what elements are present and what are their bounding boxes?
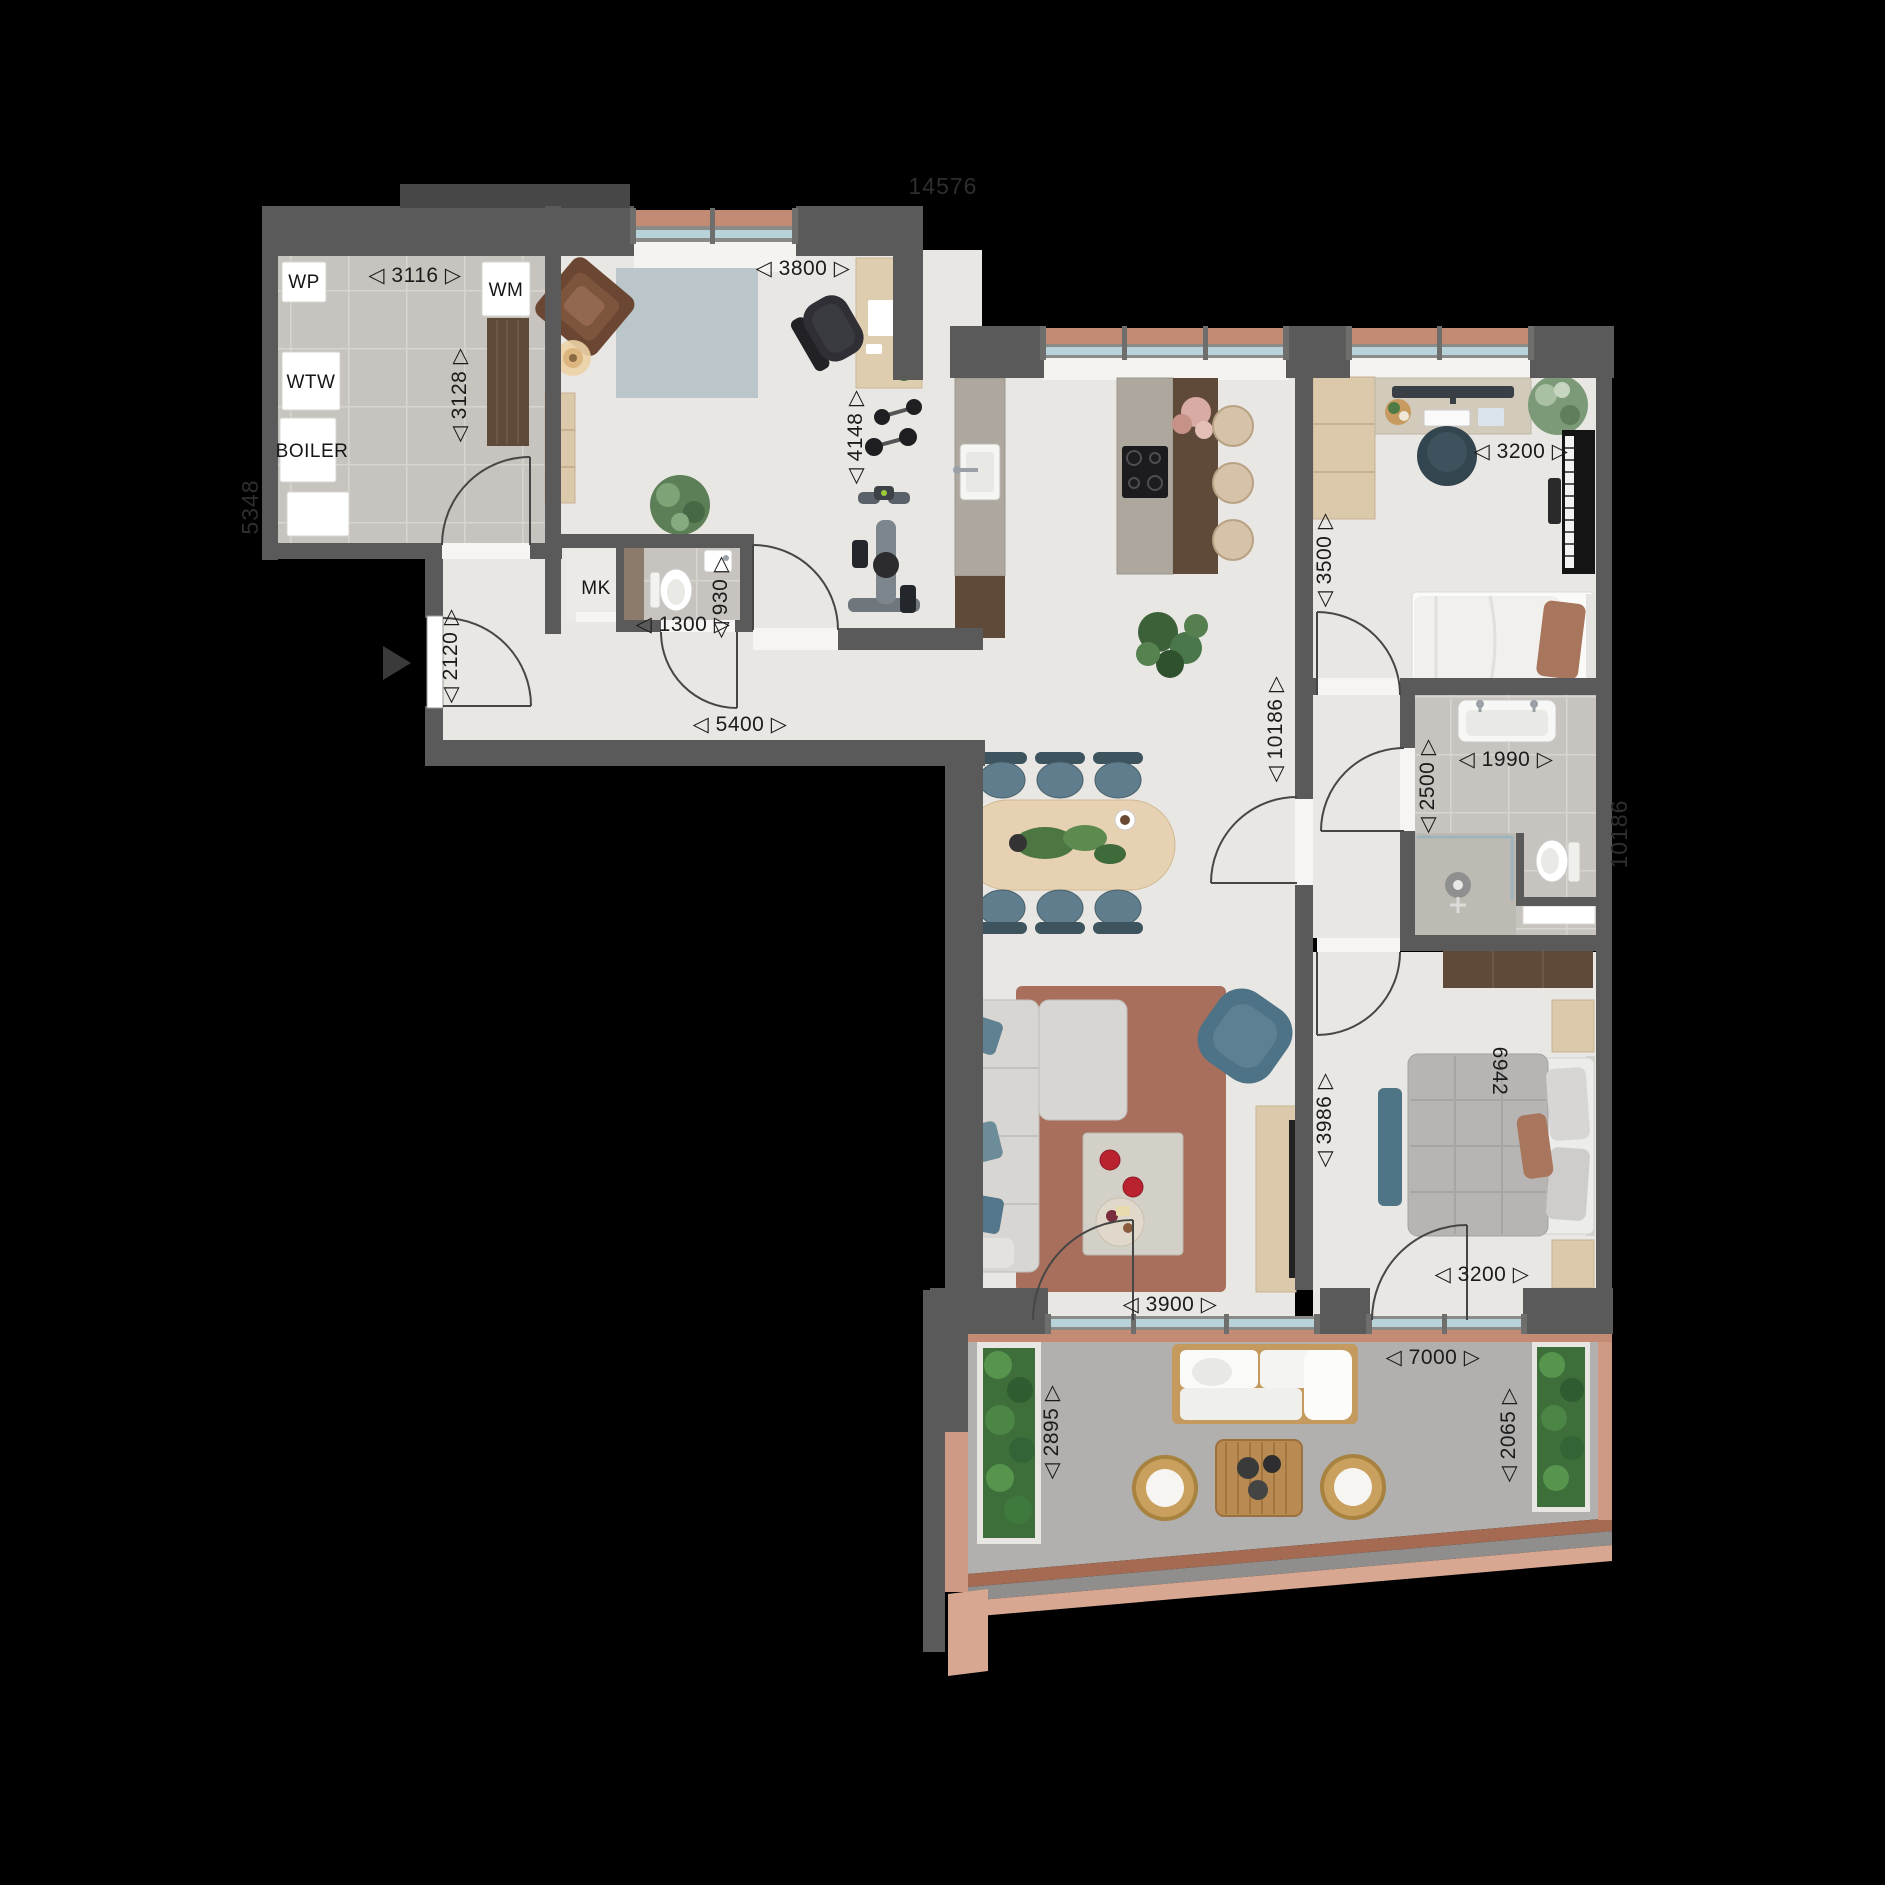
dim-bedroom1-width: ◁ 3200 ▷ — [1435, 1263, 1530, 1286]
terrace-top-salmon-band — [968, 1330, 1612, 1342]
dim-terrace-depth-right: ◁ 2065 ▷ — [1497, 1387, 1520, 1482]
bedroom1-wardrobe — [1443, 950, 1593, 988]
dim-study-width: ◁ 3800 ▷ — [756, 257, 851, 280]
bed-bench — [1378, 1088, 1402, 1206]
overall-dim-top: 14576 — [909, 173, 978, 199]
dim-living-width: ◁ 3900 ▷ — [1123, 1293, 1218, 1316]
dim-living-depth: ◁ 10186 ▷ — [1264, 675, 1287, 782]
bath-niche-shelf — [1523, 906, 1595, 924]
dim-bed-diag: 6942 — [1488, 1047, 1511, 1096]
terrace-left-salmon-band — [945, 1430, 968, 1592]
outdoor-sofa — [1172, 1344, 1358, 1424]
wc-mat — [624, 548, 644, 620]
dim-bath-depth: ◁ 2500 ▷ — [1416, 738, 1439, 833]
dim-bath-width: ◁ 1990 ▷ — [1459, 748, 1554, 771]
tech-cabinet — [287, 492, 349, 536]
tv-cabinet — [1256, 1106, 1296, 1292]
overall-dim-right: 10186 — [1606, 800, 1632, 869]
overall-dim-left: 5348 — [237, 479, 263, 534]
dresser-top — [1552, 1000, 1594, 1052]
bedroom2-window — [1346, 326, 1534, 360]
tech-door-threshold — [442, 543, 530, 559]
nightstand — [1552, 1240, 1594, 1288]
dim-hall-width: ◁ 5400 ▷ — [693, 713, 788, 736]
dim-tech-width: ◁ 3116 ▷ — [368, 264, 461, 287]
dim-bedroom2-depth: ◁ 3500 ▷ — [1313, 512, 1336, 607]
floorplan: WP WTW BOILER WM MK ◁ 3116 ▷ ◁ 3128 ▷ ◁ … — [0, 0, 1885, 1885]
study-window — [630, 208, 798, 244]
corridor-door-threshold — [1295, 799, 1313, 885]
dim-bedroom2-width: ◁ 3200 ▷ — [1474, 440, 1569, 463]
single-bed — [1412, 592, 1594, 690]
outdoor-table — [1216, 1440, 1302, 1516]
tech-wood-counter — [487, 318, 529, 446]
dim-wc-depth: ◁ 930 ▷ — [709, 555, 732, 638]
mk-door — [576, 612, 618, 622]
kitchen-window — [1040, 326, 1289, 360]
label-wtw: WTW — [287, 372, 336, 393]
study-door-threshold — [753, 628, 838, 650]
dim-entry-depth: ◁ 2120 ▷ — [439, 608, 462, 703]
bar-stools — [1213, 406, 1253, 560]
label-wm: WM — [489, 280, 524, 301]
label-mk: MK — [581, 578, 611, 599]
terrace-right-salmon-band — [1598, 1334, 1612, 1520]
label-wp: WP — [288, 272, 320, 293]
study-plant — [650, 475, 710, 535]
dim-tech-depth: ◁ 3128 ▷ — [448, 347, 471, 442]
label-boiler: BOILER — [276, 441, 349, 462]
study-rug — [616, 268, 758, 398]
double-sink — [1458, 700, 1556, 742]
bedroom2-desk — [1375, 378, 1531, 434]
kitchen-sink — [953, 444, 1000, 500]
dining-chairs-top — [977, 752, 1143, 798]
kitchen-window-sill — [1042, 356, 1288, 380]
desk-chair — [1417, 426, 1477, 486]
dim-study-depth: ◁ 4148 ▷ — [844, 389, 867, 484]
toilet — [650, 569, 692, 611]
planter-left — [977, 1342, 1041, 1544]
toilet-bathroom — [1536, 840, 1580, 882]
bedroom2-wardrobe — [1313, 377, 1375, 519]
dim-bedroom1-depth: ◁ 3986 ▷ — [1313, 1072, 1336, 1167]
bedroom2-plant — [1528, 375, 1588, 435]
bedroom1-door-threshold — [1317, 938, 1400, 952]
dining-chairs-bottom — [977, 890, 1143, 934]
bath-door-threshold — [1400, 748, 1415, 831]
bedroom2-door-threshold — [1317, 678, 1400, 695]
dim-terrace-depth-left: ◁ 2895 ▷ — [1040, 1384, 1063, 1479]
corridor-floor — [1313, 695, 1400, 938]
terrace-left-salmon-block — [948, 1589, 988, 1676]
planter-right — [1532, 1342, 1590, 1512]
cooktop — [1122, 446, 1168, 498]
dim-terrace-width: ◁ 7000 ▷ — [1386, 1346, 1481, 1369]
